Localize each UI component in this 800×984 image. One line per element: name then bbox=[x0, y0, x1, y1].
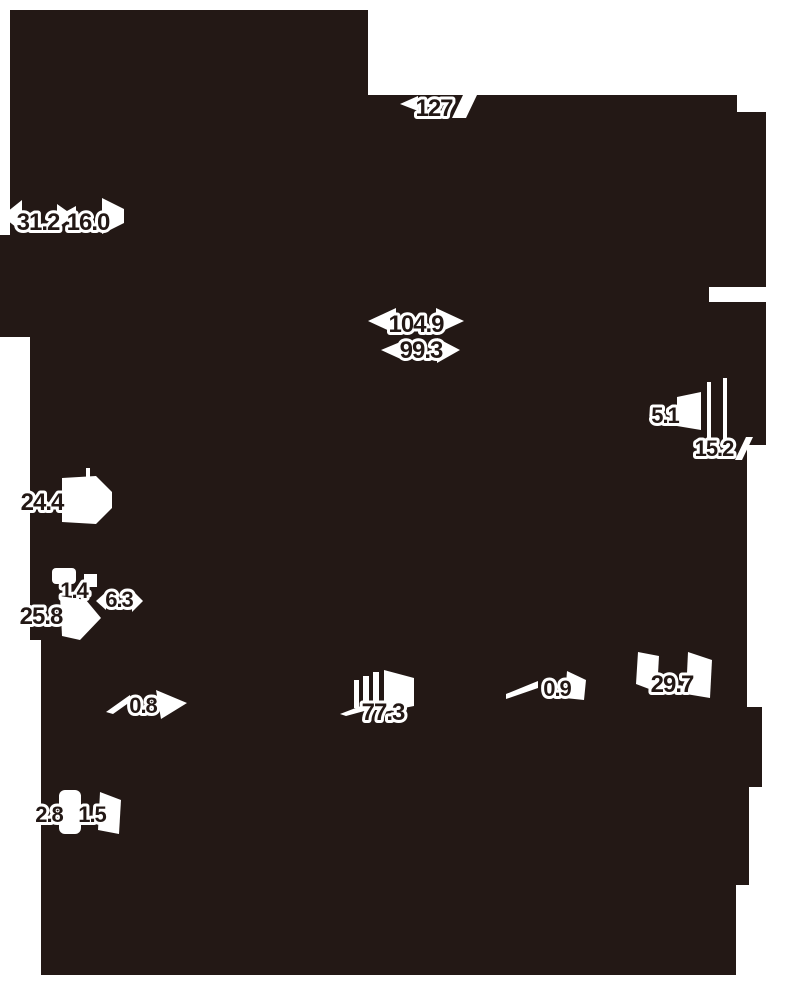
dim-label-127: 127 bbox=[415, 95, 453, 122]
dim-label-5-1: 5.1 bbox=[651, 403, 679, 428]
dim-label-0-8: 0.8 bbox=[129, 693, 157, 718]
extension-line bbox=[354, 680, 359, 708]
dim-label-16-0: 16.0 bbox=[67, 209, 110, 236]
silhouette-right-notch bbox=[709, 287, 766, 302]
dim-label-29-7: 29.7 bbox=[651, 671, 694, 698]
dim-label-104-9: 104.9 bbox=[388, 311, 444, 338]
dimension-drawing-page: 127 31.2 16.0 104.9 99.3 5.1 bbox=[0, 0, 800, 984]
dim-label-99-3: 99.3 bbox=[400, 337, 443, 364]
extension-line bbox=[723, 378, 727, 440]
leader-blob-icon bbox=[677, 392, 701, 430]
dim-label-6-3: 6.3 bbox=[105, 587, 133, 612]
dimension-drawing: 127 31.2 16.0 104.9 99.3 5.1 bbox=[0, 0, 800, 984]
dim-label-15-2: 15.2 bbox=[695, 436, 735, 461]
extension-line bbox=[86, 468, 90, 482]
dim-label-2-8: 2.8 bbox=[35, 802, 63, 827]
dim-label-24-4: 24.4 bbox=[21, 489, 65, 516]
dim-label-1-5: 1.5 bbox=[78, 802, 106, 827]
dim-label-0-9: 0.9 bbox=[543, 676, 571, 701]
dim-label-25-8: 25.8 bbox=[20, 603, 63, 630]
dim-label-31-2: 31.2 bbox=[17, 209, 60, 236]
extension-line bbox=[707, 382, 711, 440]
dim-label-77-3: 77.3 bbox=[362, 699, 405, 726]
